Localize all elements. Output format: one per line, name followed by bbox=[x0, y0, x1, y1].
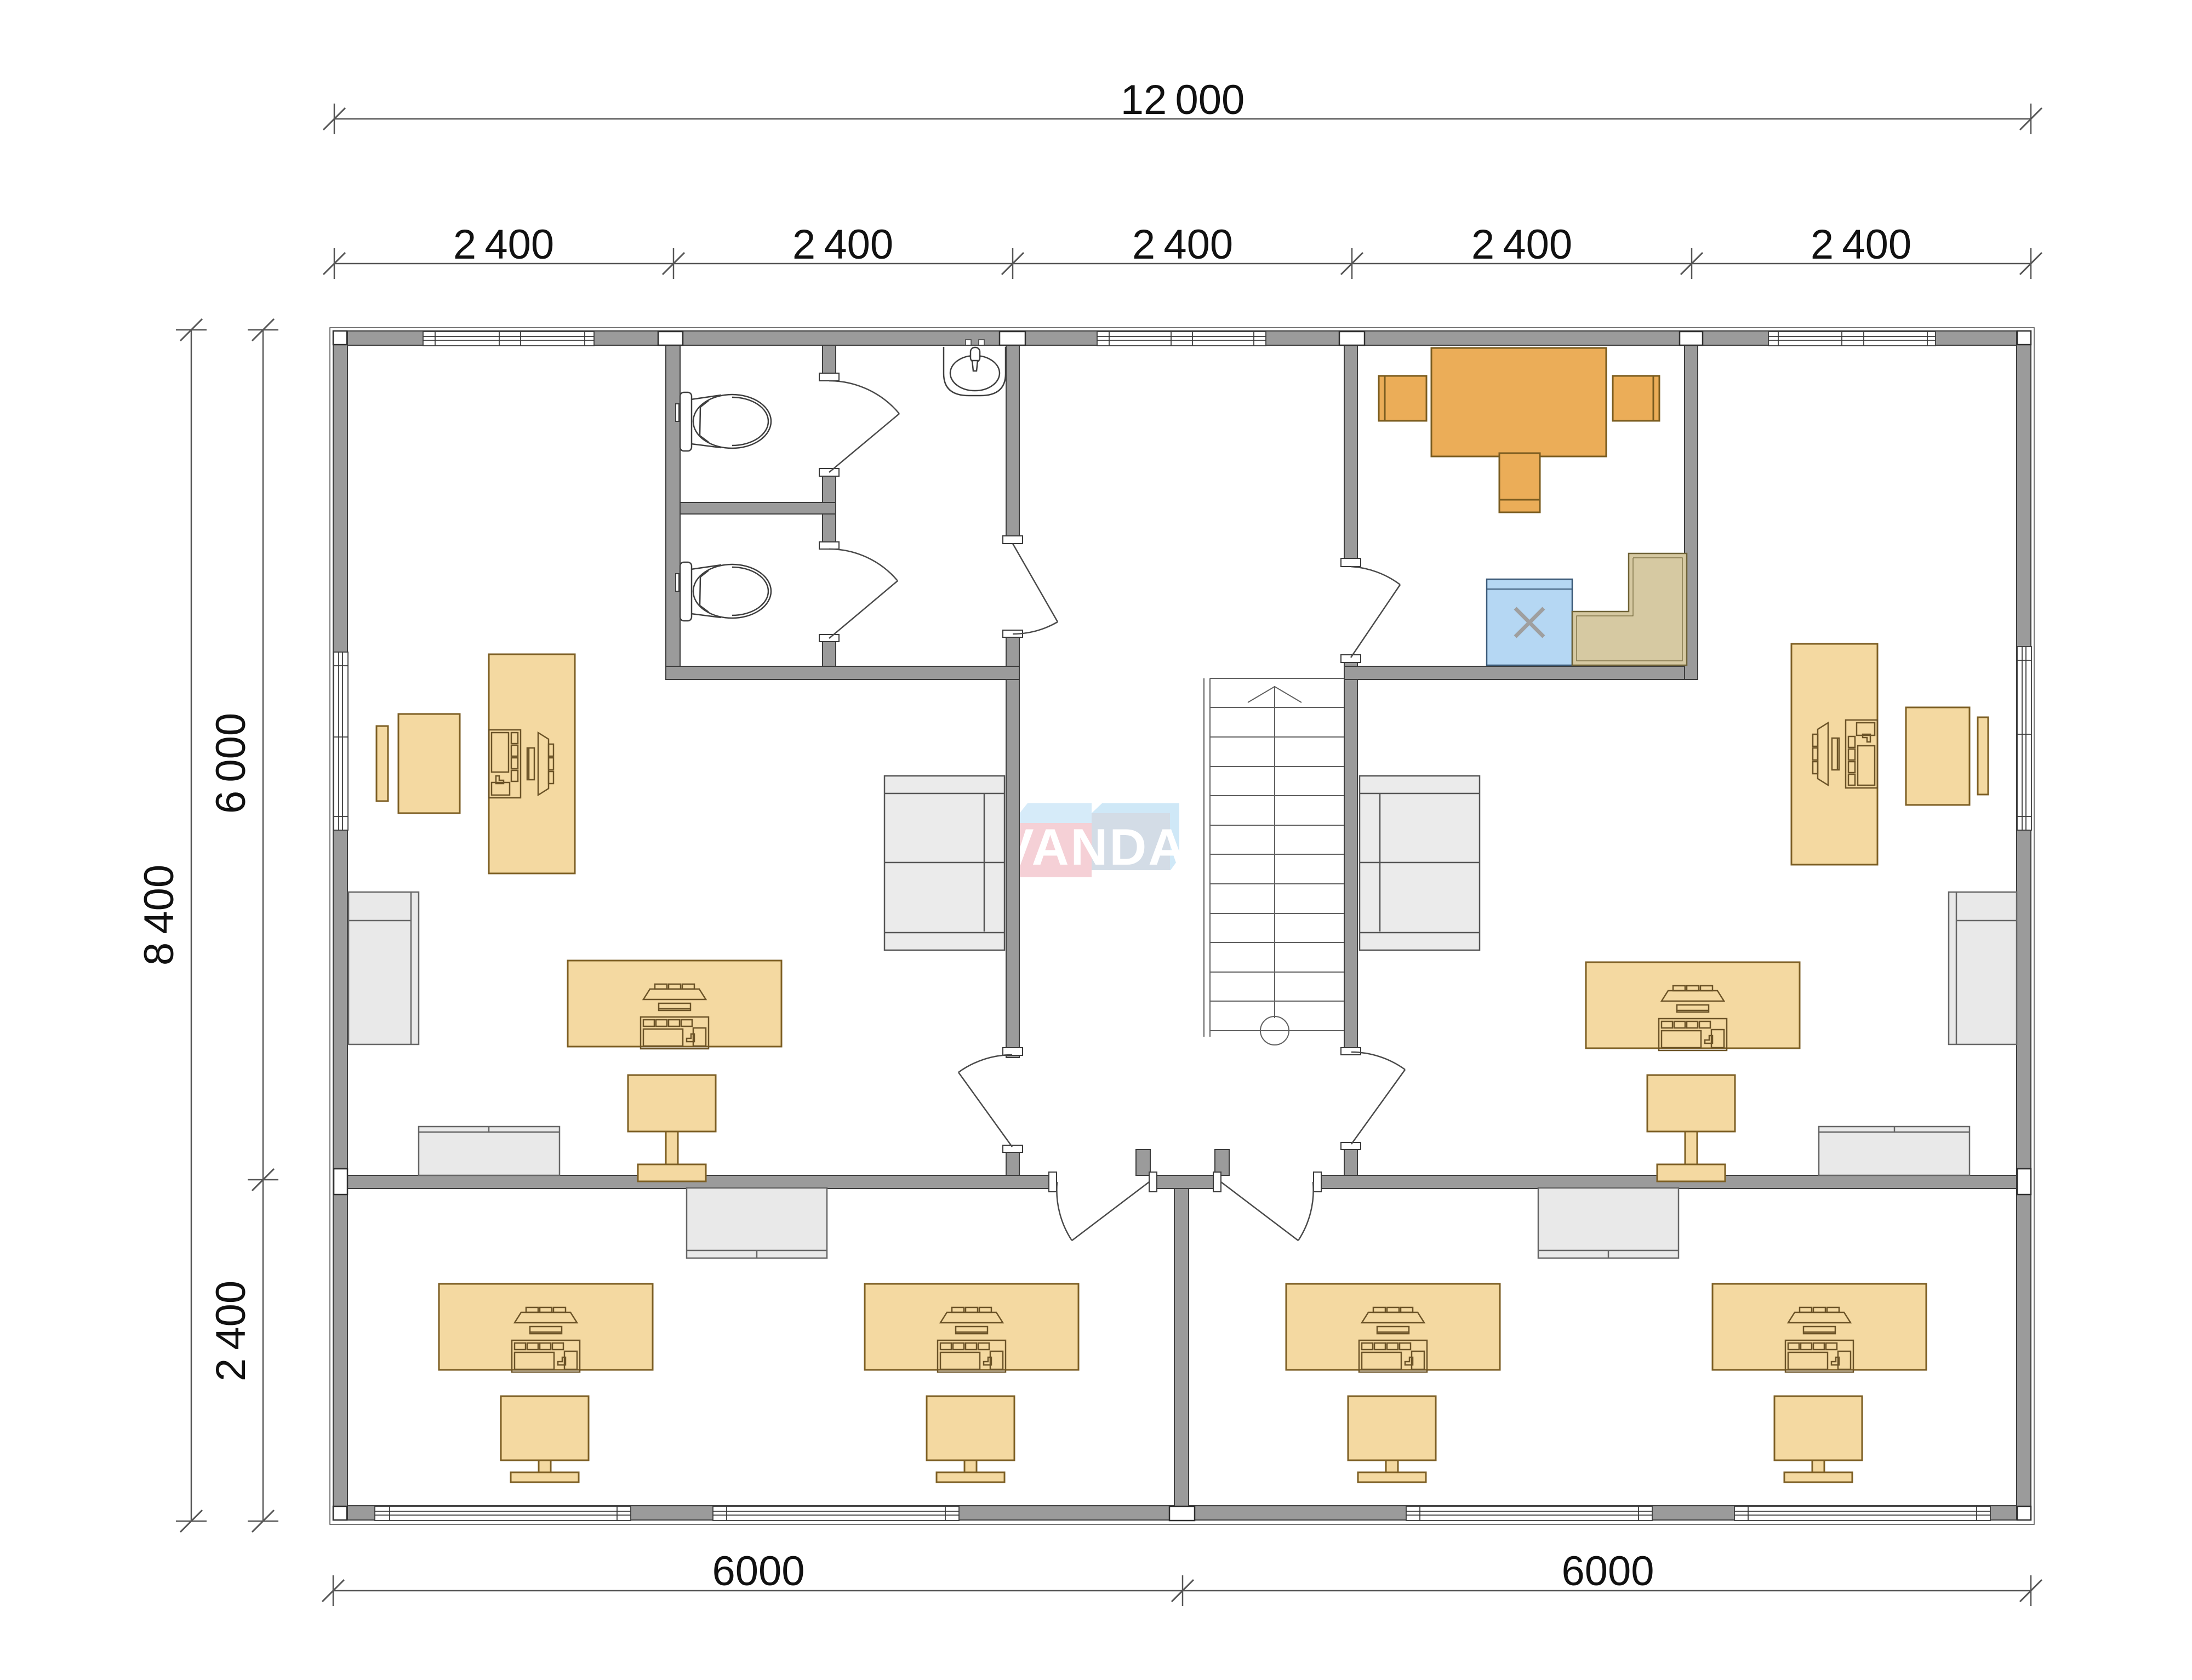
svg-text:6000: 6000 bbox=[712, 1548, 804, 1595]
svg-text:6000: 6000 bbox=[1561, 1548, 1654, 1595]
svg-text:8 400: 8 400 bbox=[136, 865, 182, 965]
svg-text:2 400: 2 400 bbox=[792, 221, 893, 268]
svg-text:6 000: 6 000 bbox=[208, 713, 254, 814]
svg-text:12 000: 12 000 bbox=[1121, 77, 1245, 123]
svg-text:2 400: 2 400 bbox=[208, 1281, 254, 1381]
svg-text:2 400: 2 400 bbox=[1811, 221, 1911, 268]
svg-text:2 400: 2 400 bbox=[453, 221, 554, 268]
svg-text:2 400: 2 400 bbox=[1471, 221, 1572, 268]
svg-text:2 400: 2 400 bbox=[1132, 221, 1233, 268]
svg-text:VANDA: VANDA bbox=[1000, 818, 1187, 876]
